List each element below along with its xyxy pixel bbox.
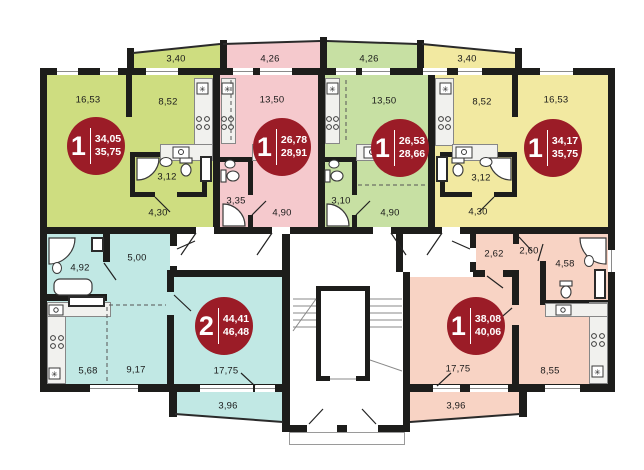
room-area-label: 3,12 [471,173,490,184]
room-area-label: 3,12 [157,172,176,183]
wall [177,192,207,197]
window [260,68,292,75]
wall [220,40,227,75]
balcony-area-label: 4,26 [260,54,279,65]
window [200,385,253,392]
balcony-area-label: 3,96 [446,401,465,412]
wall [318,68,325,234]
wall [470,234,476,248]
room-area-label: 4,58 [555,259,574,270]
room-area-label: 9,17 [126,365,145,376]
badge-divider [218,308,219,344]
window [545,385,580,392]
window [470,385,508,392]
room-area-label: 2,62 [484,249,503,260]
elevator-shaft [316,286,370,381]
badge-divider [276,129,277,165]
room-count: 1 [375,135,390,162]
entrance-door-opening [196,227,214,234]
room-area-label: 8,52 [472,97,491,108]
room-area-label: 4,92 [70,263,89,274]
window [90,385,138,392]
apartment-bottom-right-floor-b [410,277,608,384]
wall [130,152,135,197]
entrance-door-opening [442,227,460,234]
room-count: 1 [451,313,466,340]
kitchen-counter [194,78,213,146]
cabinet [200,156,212,182]
badge-divider [470,308,471,344]
wall [519,388,527,417]
balcony-area-label: 3,96 [218,401,237,412]
area-main: 44,41 [223,313,249,326]
room-area-label: 3,35 [226,196,245,207]
apartment-badge: 1 38,0840,06 [447,297,505,355]
badge-divider [90,128,91,164]
area-main: 26,53 [399,135,425,148]
room-area-label: 8,52 [158,97,177,108]
window [608,250,615,272]
area-total: 46,48 [223,326,249,339]
area-main: 34,05 [95,133,121,146]
area-total: 35,75 [552,148,578,161]
wall [282,234,290,432]
room-area-label: 13,50 [372,96,397,107]
apartment-badge: 1 34,1735,75 [524,119,582,177]
elevator-door-opening [330,375,356,382]
floor-plan: ✳ ✳ ✳ ✳ ✳ ✳ [0,0,644,470]
kitchen-counter [545,303,608,317]
room-area-label: 8,55 [540,366,559,377]
wall [290,227,373,234]
wall [167,277,174,292]
wall [214,227,272,234]
cabinet [68,296,105,307]
wall [167,315,174,384]
window [57,68,78,75]
wall [378,425,410,432]
room-area-label: 17,75 [214,366,239,377]
badge-divider [547,130,548,166]
wall [540,261,546,305]
room-area-label: 16,53 [76,95,101,106]
wall [213,68,220,234]
window [423,68,447,75]
washing-machine [91,237,104,252]
cabinet [436,156,448,182]
wall [282,425,307,432]
room-area-label: 13,50 [260,95,285,106]
wall [473,270,485,277]
wall [130,192,155,197]
room-area-label: 4,90 [272,208,291,219]
wall [460,227,615,234]
area-main: 38,08 [475,313,501,326]
wall [170,234,177,246]
wall [512,152,517,197]
entrance-porch [289,432,405,445]
room-area-label: 5,00 [127,253,146,264]
wall [494,192,517,197]
wall [352,157,357,195]
wall [391,227,442,234]
wall [513,234,519,244]
room-count: 1 [528,135,543,162]
wall [515,48,522,75]
wall [126,68,132,117]
balcony-door-opening [433,385,460,392]
wall [169,388,177,417]
window [336,68,356,75]
wall [428,68,435,234]
kitchen-counter [221,78,236,144]
wall [337,425,347,432]
wall [40,227,196,234]
window [146,68,178,75]
apartment-badge: 1 26,5328,66 [371,119,429,177]
water-heater [594,269,606,299]
area-total: 35,75 [95,146,121,159]
balcony-area-label: 3,40 [457,54,476,65]
entrance-door-opening [272,227,290,234]
wall [512,325,519,384]
window [540,68,573,75]
badge-divider [394,130,395,166]
balcony-area-label: 4,26 [359,54,378,65]
entrance-door-opening [373,227,391,234]
wall [320,37,327,75]
room-area-label: 4,30 [148,208,167,219]
room-area-label: 2,60 [519,246,538,257]
area-total: 28,91 [281,147,307,160]
apartment-badge: 2 44,4146,48 [195,297,253,355]
window [100,68,118,75]
room-count: 1 [71,133,86,160]
room-area-label: 16,53 [544,95,569,106]
wall [512,270,519,305]
room-area-label: 5,68 [78,366,97,377]
balcony-area-label: 3,40 [166,54,185,65]
area-total: 40,06 [475,326,501,339]
kitchen-counter [435,78,454,146]
window [458,68,482,75]
wall [440,192,472,197]
room-count: 2 [199,313,214,340]
apartment-badge: 1 34,0535,75 [67,117,125,175]
kitchen-counter [325,78,340,144]
window [362,68,390,75]
room-area-label: 4,30 [468,207,487,218]
wall [248,157,253,195]
kitchen-counter [452,144,498,161]
area-main: 34,17 [552,135,578,148]
window [233,68,253,75]
apartment-badge: 1 26,7828,91 [253,118,311,176]
wall [352,215,357,232]
area-main: 26,78 [281,134,307,147]
wall [127,48,134,75]
room-area-label: 4,90 [380,208,399,219]
area-total: 28,66 [399,148,425,161]
wall [248,215,253,232]
wall [512,68,518,117]
balcony-door-opening [255,385,275,392]
room-area-label: 3,10 [331,196,350,207]
room-count: 1 [257,134,272,161]
wall [103,234,110,262]
room-area-label: 17,75 [446,364,471,375]
wall [396,234,403,272]
wall [403,272,410,432]
wall [167,270,290,277]
